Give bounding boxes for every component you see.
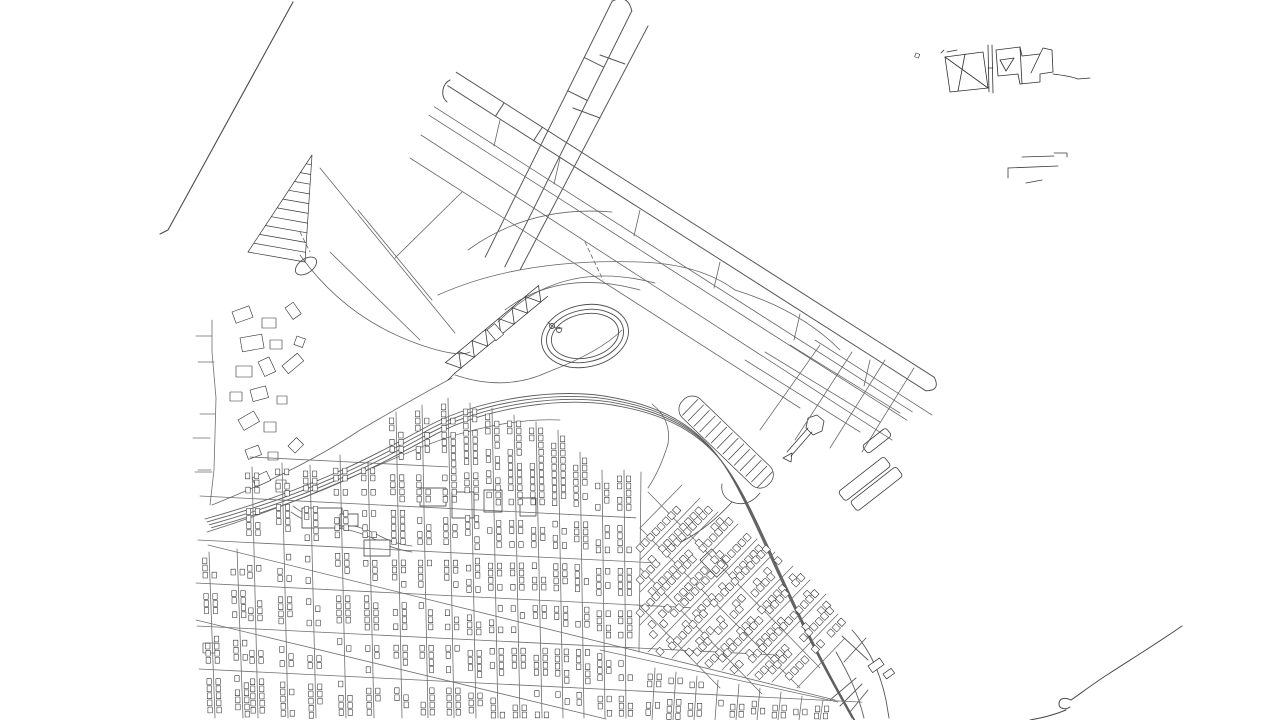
basin-roads xyxy=(745,340,932,452)
oval-loop xyxy=(292,253,634,375)
west-roads xyxy=(193,320,216,505)
ne-docks xyxy=(1008,153,1067,183)
interchange xyxy=(830,630,889,718)
runway-nw-se xyxy=(443,72,937,390)
tower-building xyxy=(783,415,824,462)
piers xyxy=(838,428,903,512)
ne-building-cluster xyxy=(941,45,1090,93)
infield-dashes xyxy=(300,232,603,280)
parking-hairpin xyxy=(674,391,778,493)
shoreline-se xyxy=(1030,626,1182,720)
infield-curves xyxy=(212,211,840,505)
map-viewport xyxy=(0,0,1280,720)
nw-boundary-line xyxy=(160,2,293,234)
building-rows xyxy=(203,404,846,719)
taxiways xyxy=(320,107,912,440)
pier-hatch-structure xyxy=(248,155,312,262)
map-canvas[interactable] xyxy=(0,0,1280,720)
west-buildings xyxy=(203,53,920,653)
